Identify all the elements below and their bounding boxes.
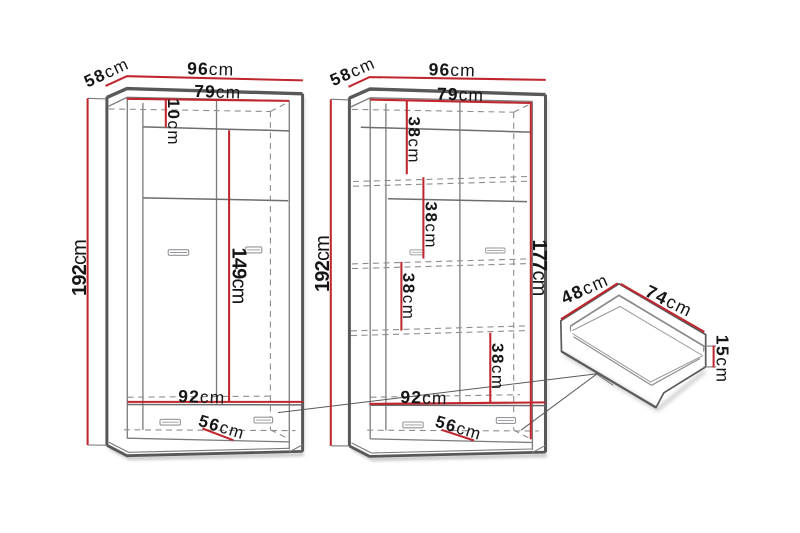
- svg-text:192cm: 192cm: [69, 240, 91, 296]
- svg-text:96cm: 96cm: [187, 58, 235, 79]
- svg-text:15cm: 15cm: [713, 335, 733, 384]
- svg-text:149cm: 149cm: [227, 248, 249, 304]
- svg-text:96cm: 96cm: [428, 59, 476, 80]
- svg-text:38cm: 38cm: [399, 273, 418, 321]
- svg-text:92cm: 92cm: [400, 387, 448, 408]
- svg-text:38cm: 38cm: [405, 117, 424, 165]
- svg-text:79cm: 79cm: [437, 84, 485, 105]
- svg-text:192cm: 192cm: [312, 236, 334, 292]
- svg-text:177cm: 177cm: [528, 240, 550, 296]
- svg-text:38cm: 38cm: [421, 202, 440, 250]
- svg-text:10cm: 10cm: [164, 99, 183, 147]
- svg-text:92cm: 92cm: [178, 386, 226, 408]
- svg-text:79cm: 79cm: [194, 81, 242, 103]
- svg-text:38cm: 38cm: [488, 343, 507, 391]
